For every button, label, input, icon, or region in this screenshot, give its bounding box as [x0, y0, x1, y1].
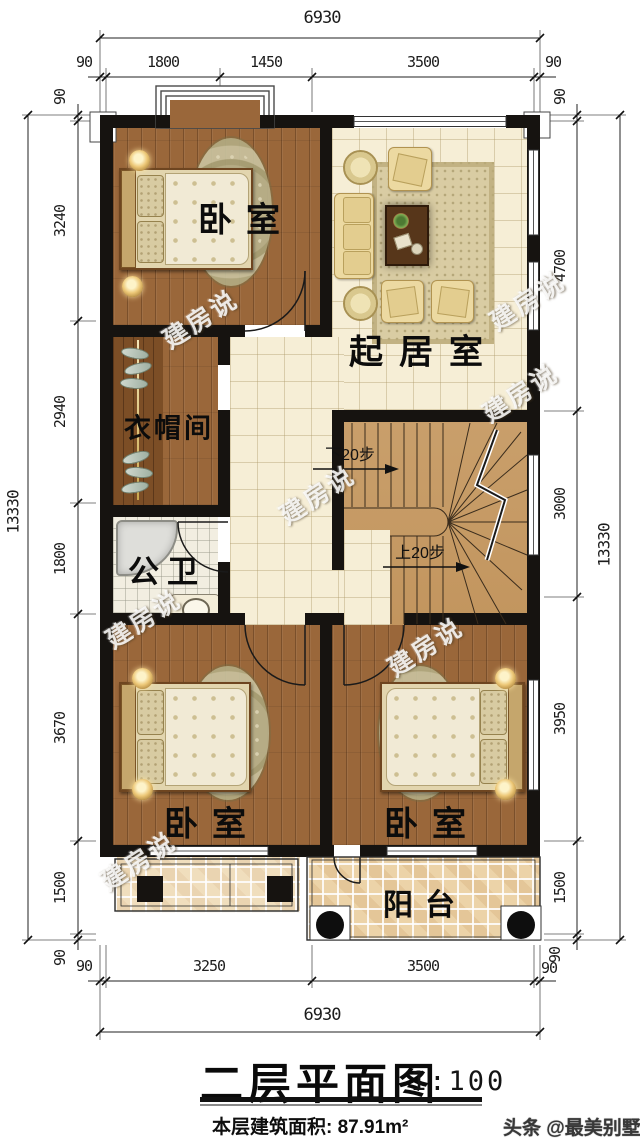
dim-left: 3670	[51, 712, 69, 744]
title-underline	[200, 1097, 482, 1102]
stairs-up-label: 上20步	[395, 539, 445, 563]
dim-top: 3500	[407, 53, 439, 71]
dim-top: 90	[76, 53, 92, 71]
brand-watermark: 头条 @最美别墅	[503, 1113, 640, 1140]
dim-bottom-overall: 6930	[304, 1005, 341, 1025]
dim-left: 2940	[51, 396, 69, 428]
floor-area-label: 本层建筑面积: 87.91m²	[212, 1112, 408, 1139]
dim-right: 1500	[551, 872, 569, 904]
dim-left: 3240	[51, 205, 69, 237]
room-label-living: 起居室	[349, 325, 499, 374]
dim-bottom: 90	[541, 959, 557, 977]
dim-right-overall: 13330	[595, 523, 614, 566]
dim-left: 90	[51, 89, 69, 105]
dim-bottom: 90	[76, 957, 92, 975]
room-label-cloakroom: 衣帽间	[124, 407, 214, 446]
floor-plan-page: 6930 90 1800 1450 3500 90 13330 90 3240 …	[0, 0, 640, 1144]
dim-top-overall: 6930	[304, 8, 341, 28]
room-label-bedroom-right: 卧室	[384, 797, 480, 846]
dim-left-overall: 13330	[4, 490, 23, 533]
dim-right: 90	[551, 89, 569, 105]
dim-left: 90	[51, 950, 69, 966]
room-label-balcony: 阳台	[383, 880, 467, 924]
plan-scale: 1:100	[410, 1066, 506, 1097]
dim-top: 1450	[250, 53, 282, 71]
room-label-bedroom-left: 卧室	[164, 797, 260, 846]
dim-bottom: 3500	[407, 957, 439, 975]
plan-title: 二层平面图	[200, 1050, 440, 1112]
dim-top: 90	[545, 53, 561, 71]
dim-top: 1800	[147, 53, 179, 71]
dim-left: 1800	[51, 543, 69, 575]
title-underline-shadow	[200, 1104, 482, 1106]
dim-right: 3950	[551, 703, 569, 735]
dim-bottom: 3250	[193, 957, 225, 975]
dim-left: 1500	[51, 872, 69, 904]
dim-right: 3000	[551, 488, 569, 520]
room-label-bedroom-top: 卧室	[198, 193, 294, 242]
